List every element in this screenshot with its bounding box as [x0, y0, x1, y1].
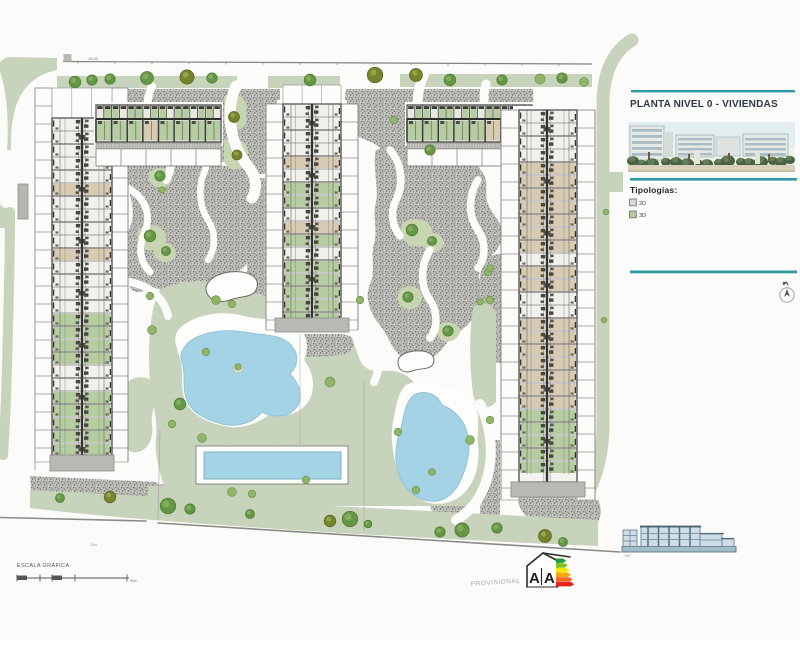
svg-text:3D: 3D — [639, 213, 646, 219]
svg-text:10m: 10m — [90, 543, 97, 547]
svg-text:PLANTA NIVEL 0 - VIVIENDAS: PLANTA NIVEL 0 - VIVIENDAS — [630, 99, 778, 110]
svg-text:ESCALA GRÁFICA: ESCALA GRÁFICA — [17, 562, 69, 569]
svg-text:16.00: 16.00 — [88, 56, 99, 61]
svg-text:A: A — [529, 570, 540, 587]
svg-text:50m: 50m — [130, 579, 137, 583]
svg-text:2D: 2D — [639, 201, 646, 207]
svg-text:h07: h07 — [625, 554, 631, 558]
svg-text:Tipologías:: Tipologías: — [630, 185, 677, 195]
svg-text:A: A — [544, 570, 555, 587]
